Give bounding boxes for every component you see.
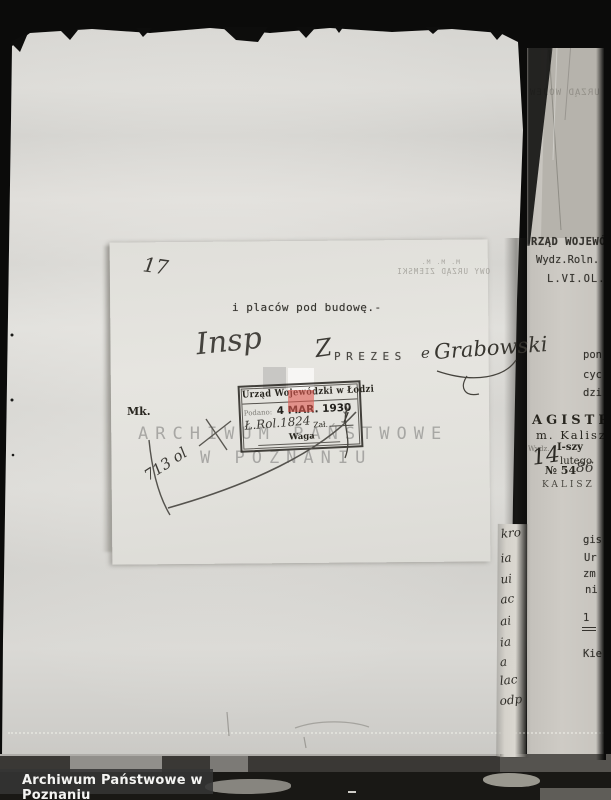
strip-fragment: kro bbox=[500, 525, 522, 541]
strip-fragment: ac bbox=[500, 591, 515, 606]
typed-title: PREZES bbox=[334, 350, 407, 363]
double-underline bbox=[582, 627, 596, 631]
calibration-red-square bbox=[288, 390, 314, 412]
right-fragment: Ur bbox=[584, 552, 597, 564]
stamp-weight-label: Waga bbox=[289, 431, 315, 442]
right-edge-shadow bbox=[596, 0, 606, 760]
bottom-strip-mid bbox=[210, 756, 248, 772]
signature-prefix: Z bbox=[313, 333, 333, 363]
handwritten-page-number: 17 bbox=[141, 252, 170, 279]
archival-scan-viewport: M. M. M. OWY URZĄD ZIEMSKI 17 i placów p… bbox=[0, 0, 611, 800]
strip-fragment: odp bbox=[499, 692, 523, 708]
magistrat-number-hand: 86 bbox=[576, 460, 594, 476]
bottom-blob-2 bbox=[483, 773, 540, 787]
right-page: URZĄD WOJEW RZĄD WOJEWÓDZ Wydz.Roln. I L… bbox=[527, 0, 604, 758]
magistrat-line2: m. Kalisz bbox=[536, 428, 604, 442]
archive-caption: Archiwum Państwowe w Poznaniu bbox=[22, 773, 213, 800]
magistrat-number-label: № 54 bbox=[545, 464, 576, 477]
right-fragment: 1 bbox=[583, 612, 589, 624]
signature-connector: e bbox=[421, 344, 430, 362]
margin-note: Mk. bbox=[127, 405, 151, 418]
showthrough-line2: OWY URZĄD ZIEMSKI bbox=[378, 267, 490, 276]
strip-fragment: lac bbox=[499, 672, 518, 688]
right-fragment: zm bbox=[583, 568, 596, 580]
right-header-line2: Wydz.Roln. I bbox=[536, 254, 604, 266]
watermark-line2: W POZNANIU bbox=[200, 448, 372, 468]
strip-fragment: ia bbox=[499, 634, 511, 649]
showthrough-text: M. M. M. OWY URZĄD ZIEMSKI bbox=[378, 258, 490, 276]
top-border-right bbox=[527, 0, 604, 48]
typed-line: i placów pod budowę.- bbox=[232, 301, 382, 314]
strip-fragment: ai bbox=[499, 613, 511, 628]
strip-fragment: ui bbox=[500, 571, 513, 586]
bottom-white-dash bbox=[348, 791, 356, 793]
magistrat-line1: AGISTR bbox=[532, 413, 604, 428]
right-header-line1: RZĄD WOJEWÓDZ bbox=[531, 236, 604, 248]
stamp-attachment-label: Zał. bbox=[313, 420, 328, 430]
magistrat-city: KALISZ bbox=[542, 480, 595, 490]
strip-fragment: ia bbox=[500, 550, 512, 565]
handwritten-annotation: Insp bbox=[194, 321, 263, 363]
handwritten-margin-strip: kro ia ui ac ai ia a lac odp bbox=[496, 524, 528, 757]
strip-fragment: a bbox=[499, 655, 507, 670]
showthrough-line1: M. M. M. bbox=[378, 258, 490, 266]
bottom-corner-texture bbox=[540, 788, 611, 800]
magistrat-dept: I-szy bbox=[557, 442, 583, 453]
archive-caption-bar: Archiwum Państwowe w Poznaniu bbox=[0, 769, 213, 794]
bottom-blob-1 bbox=[205, 779, 291, 794]
